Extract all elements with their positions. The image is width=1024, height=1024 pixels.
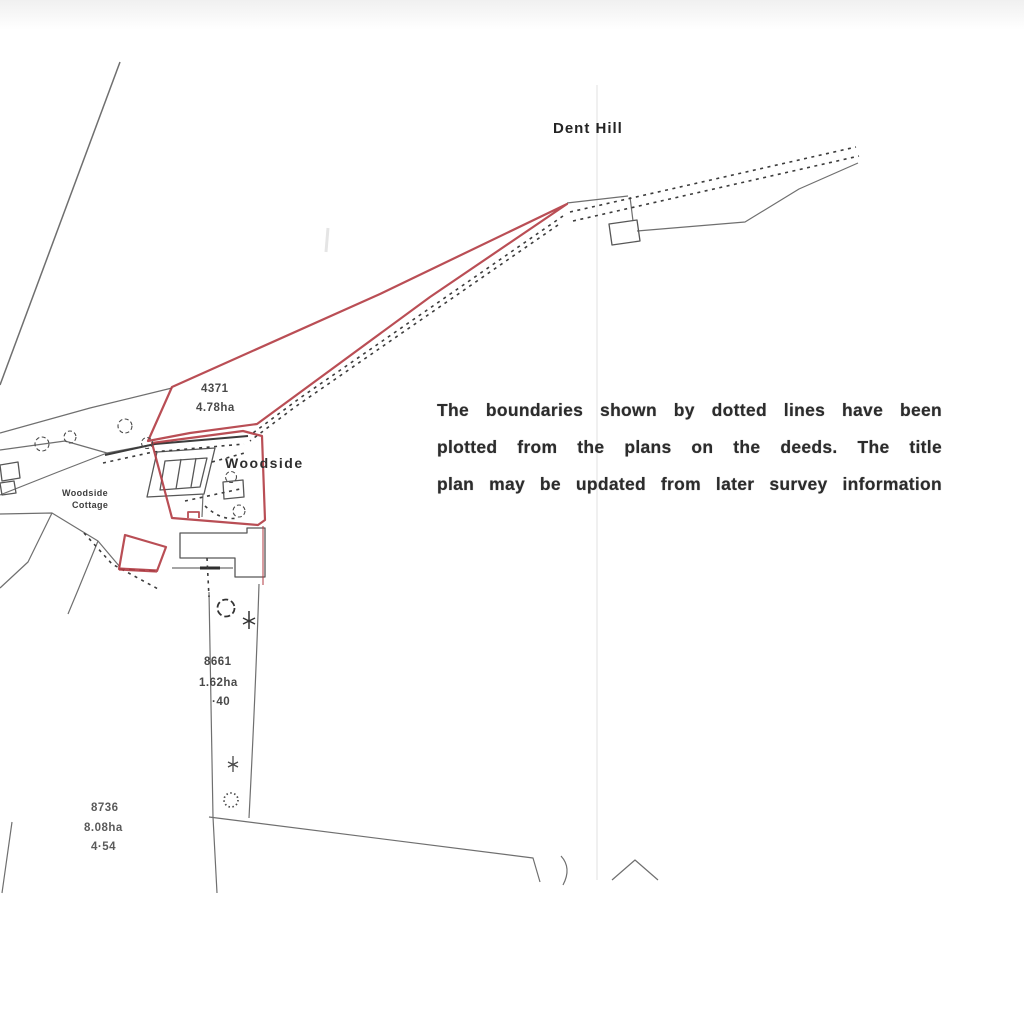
red-boundary-triangle: [119, 535, 166, 571]
southwest-edge-line: [2, 822, 12, 893]
place-label-woodside-cottage-2: Cottage: [72, 500, 108, 510]
parcel-number: 4371: [201, 383, 229, 395]
woodside-house-outer: [147, 448, 215, 497]
dotted-track-lower: [573, 156, 859, 221]
tree-icon: [64, 431, 76, 443]
boundaries-note: The boundaries shown by dotted lines hav…: [437, 392, 942, 503]
tree-icon: [224, 793, 238, 807]
boundaries-note-line: plotted from the plans on the deeds. The…: [437, 429, 942, 466]
tree-icon: [118, 419, 132, 433]
dotted-garden-curve: [205, 506, 238, 519]
south-field-boundary: [209, 817, 540, 882]
parcel-acres: ·40: [212, 696, 230, 708]
outbuilding-small: [223, 480, 244, 499]
dotted-boundary-lines: [84, 147, 859, 597]
parcel-hectares: 1.62ha: [199, 677, 238, 689]
place-label-woodside: Woodside: [225, 455, 304, 471]
place-label-dent-hill: Dent Hill: [553, 120, 623, 137]
title-plan-map: Dent Hill Woodside Woodside Cottage 4371…: [0, 0, 1024, 1024]
boundaries-note-line: The boundaries shown by dotted lines hav…: [437, 392, 942, 429]
road-to-parcel-corner: [0, 388, 172, 433]
tree-icon: [218, 600, 235, 617]
lane-west-edge: [209, 592, 217, 893]
place-label-woodside-cottage-1: Woodside: [62, 488, 108, 498]
road-edge: [0, 513, 120, 567]
conifer-icon: [243, 611, 255, 629]
dotted-track-upper: [570, 147, 856, 212]
house-internal-walls: [176, 458, 196, 489]
south-curve-line: [561, 856, 567, 885]
parcel-hectares: 8.08ha: [84, 822, 123, 834]
boundary-line-northwest: [0, 62, 120, 385]
parcel-acres: 4·54: [91, 841, 116, 853]
parcel-number: 8661: [204, 656, 232, 668]
barn-stepped-outline: [180, 528, 265, 577]
red-boundary-barn-bump: [188, 512, 199, 518]
boundaries-note-line: plan may be updated from later survey in…: [437, 466, 942, 503]
woodside-house-inner: [160, 458, 207, 490]
road-edge: [0, 513, 52, 588]
boundary-line-northeast: [637, 163, 858, 231]
road-edge: [68, 541, 98, 614]
dotted-path-lane-top: [207, 558, 209, 597]
red-boundary-woodside-parcel: [152, 431, 265, 525]
parcel-hectares: 4.78ha: [196, 402, 235, 414]
cottage-building: [0, 481, 16, 495]
scanned-title-plan: Dent Hill Woodside Woodside Cottage 4371…: [0, 0, 1024, 1024]
conifer-icon: [228, 756, 238, 772]
parcel-number: 8736: [91, 802, 119, 814]
red-boundary-triangle-base: [119, 569, 157, 571]
south-caret-line: [612, 860, 658, 880]
dent-hill-building: [609, 220, 640, 245]
tree-icon: [233, 505, 245, 517]
cottage-building: [0, 462, 20, 481]
road-edge: [0, 441, 155, 453]
